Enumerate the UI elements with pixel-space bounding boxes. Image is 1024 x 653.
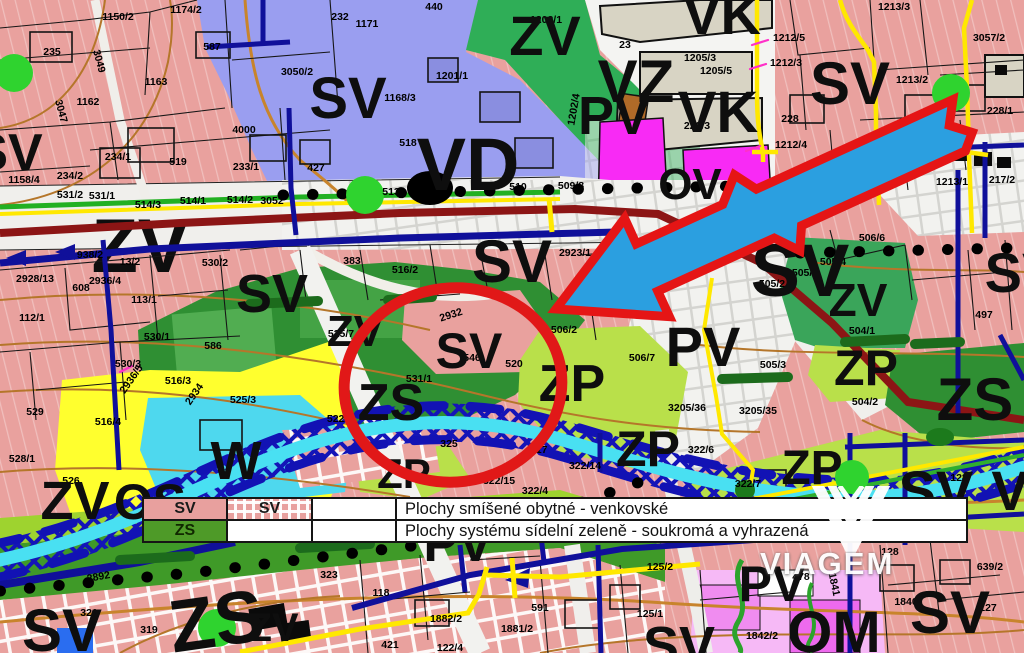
- parcel-number: 1168/3: [384, 92, 416, 104]
- parcel-number: 529: [26, 406, 44, 418]
- parcel-number: 530/2: [202, 257, 228, 269]
- zone-label: SV: [436, 323, 503, 379]
- parcel-number: 1174/2: [170, 4, 202, 16]
- parcel-number: 591: [531, 602, 549, 614]
- zone-label: PV: [666, 315, 741, 378]
- parcel-number: 516/4: [95, 416, 121, 428]
- zone-label: PV: [578, 86, 650, 146]
- parcel-number: 3057/2: [973, 32, 1005, 44]
- parcel-number: 234/2: [57, 170, 83, 182]
- parcel-number: 1163: [145, 76, 168, 88]
- zone-label: SV: [309, 66, 387, 131]
- parcel-number: 421: [381, 639, 399, 651]
- parcel-number: 516/3: [165, 375, 191, 387]
- zone-label: SV: [472, 228, 552, 295]
- parcel-number: 1882/2: [430, 613, 462, 625]
- parcel-number: 504/1: [849, 325, 875, 337]
- parcel-number: 440: [425, 1, 443, 13]
- parcel-number: 383: [343, 255, 361, 267]
- parcel-number: 128: [881, 546, 899, 558]
- zone-label: SV: [236, 264, 308, 324]
- parcel-number: 520: [505, 358, 523, 370]
- parcel-number: 427: [307, 162, 325, 174]
- zone-label: SV: [985, 241, 1024, 304]
- legend-swatch-empty: [311, 497, 397, 521]
- parcel-number: 506/2: [551, 324, 577, 336]
- legend-row-zs: ZS Plochy systému sídelní zeleně - soukr…: [142, 519, 968, 543]
- parcel-number: 1205/3: [684, 52, 716, 64]
- parcel-number: 325: [440, 438, 458, 450]
- parcel-number: 13/2: [120, 256, 141, 268]
- parcel-number: 1205/5: [700, 65, 732, 77]
- parcel-number: 531/2: [57, 189, 83, 201]
- zone-label: ZV: [40, 471, 109, 531]
- parcel-number: 587: [203, 41, 221, 53]
- legend-swatch-empty: [311, 519, 397, 543]
- parcel-number: 125/2: [647, 561, 673, 573]
- parcel-number: 513: [382, 186, 400, 198]
- parcel-number: 1881/2: [501, 623, 533, 635]
- parcel-number: 504/2: [852, 396, 878, 408]
- parcel-number: 118: [373, 587, 390, 599]
- parcel-number: 2936/4: [89, 275, 121, 287]
- parcel-number: 1212/4: [775, 139, 807, 151]
- zone-label: ZV: [829, 274, 888, 326]
- legend-swatch-zs: ZS: [142, 519, 228, 543]
- parcel-number: 228/1: [987, 105, 1013, 117]
- legend-desc-sv: Plochy smíšené obytné - venkovské: [395, 497, 968, 521]
- zone-label: SV: [810, 50, 890, 117]
- parcel-number: 519: [169, 156, 187, 168]
- legend-row-sv: SV SV Plochy smíšené obytné - venkovské: [142, 497, 968, 521]
- zone-label: OV: [658, 160, 722, 209]
- legend-desc-zs: Plochy systému sídelní zeleně - soukromá…: [395, 519, 968, 543]
- parcel-number: 322/4: [522, 485, 548, 497]
- parcel-number: 234/1: [105, 151, 131, 163]
- zone-label: SV: [22, 597, 102, 653]
- parcel-number: 322/7: [735, 478, 761, 490]
- parcel-number: 528/1: [9, 453, 35, 465]
- zone-label: V: [991, 459, 1024, 522]
- zone-label: ZS: [358, 374, 424, 432]
- parcel-number: 1171: [356, 18, 379, 30]
- parcel-number: 232: [331, 11, 349, 23]
- zone-label: ZP: [834, 340, 898, 396]
- parcel-number: 3205/35: [739, 405, 777, 417]
- parcel-number: 514/2: [227, 194, 253, 206]
- parcel-number: 122/4: [437, 642, 463, 653]
- zone-label: SV: [643, 616, 715, 653]
- parcel-number: 113/1: [131, 294, 157, 306]
- parcel-number: 586: [204, 340, 222, 352]
- legend-swatch-sv-hatched: SV: [226, 497, 313, 521]
- parcel-number: 2923/1: [559, 247, 591, 259]
- parcel-number: 4000: [232, 124, 256, 136]
- parcel-number: 1162: [77, 96, 100, 108]
- zone-label: VK: [678, 80, 759, 145]
- parcel-number: 1212/3: [770, 57, 802, 69]
- zone-label: ZV: [247, 606, 298, 650]
- zone-label: ZP: [781, 442, 842, 495]
- parcel-number: 506/7: [629, 352, 655, 364]
- zone-label: ZP: [539, 355, 605, 413]
- parcel-number: 514/1: [180, 195, 206, 207]
- map-canvas: ZV: [0, 0, 1024, 653]
- parcel-number: 531/1: [89, 190, 115, 202]
- zone-label: ZV: [509, 4, 581, 67]
- parcel-number: 233/1: [233, 161, 259, 173]
- parcel-number: 608: [72, 282, 90, 294]
- legend: SV SV Plochy smíšené obytné - venkovské …: [142, 497, 968, 543]
- parcel-number: 3205/36: [668, 402, 706, 414]
- zoning-map-screenshot: ZV: [0, 0, 1024, 653]
- zone-label: SV: [0, 124, 43, 182]
- parcel-number: 525/3: [230, 394, 256, 406]
- parcel-number: 228: [781, 113, 799, 125]
- parcel-number: 497: [975, 309, 993, 321]
- parcel-number: 319: [140, 624, 158, 636]
- parcel-number: 518: [399, 137, 417, 149]
- legend-swatch-sv: SV: [142, 497, 228, 521]
- parcel-number: 1213/1: [936, 176, 968, 188]
- parcel-number: 514/3: [135, 199, 161, 211]
- parcel-number: 639/2: [977, 561, 1003, 573]
- zone-label: VD: [417, 123, 520, 206]
- parcel-number: 1150/2: [102, 11, 134, 23]
- zone-label: ZP: [616, 421, 680, 477]
- parcel-number: 2928/13: [16, 273, 54, 285]
- parcel-number: 1842/2: [746, 630, 778, 642]
- parcel-number: 938/2: [77, 249, 103, 261]
- zone-label: VK: [683, 0, 761, 46]
- parcel-number: 505/3: [760, 359, 786, 371]
- parcel-number: 1212/5: [773, 32, 805, 44]
- parcel-number: 509/8: [558, 180, 584, 192]
- parcel-number: 3052: [260, 195, 284, 207]
- zone-label: SV: [910, 579, 990, 646]
- parcel-number: 235: [43, 46, 61, 58]
- parcel-number: 1201/1: [436, 70, 468, 82]
- parcel-number: 112/1: [19, 312, 45, 324]
- parcel-number: 323: [320, 569, 338, 581]
- parcel-number: 506/6: [859, 232, 885, 244]
- parcel-number: 217/2: [989, 174, 1015, 186]
- parcel-number: 1213/3: [878, 1, 910, 13]
- zone-label: ZS: [937, 366, 1014, 433]
- parcel-number: 530/1: [144, 331, 170, 343]
- parcel-number: 322/14: [569, 460, 601, 472]
- zone-label: W: [211, 431, 262, 491]
- parcel-number: 516/2: [392, 264, 418, 276]
- legend-swatch-empty: [226, 519, 313, 543]
- zone-label: PV: [739, 556, 806, 612]
- parcel-number: 322/6: [688, 444, 714, 456]
- parcel-number: 1213/2: [896, 74, 928, 86]
